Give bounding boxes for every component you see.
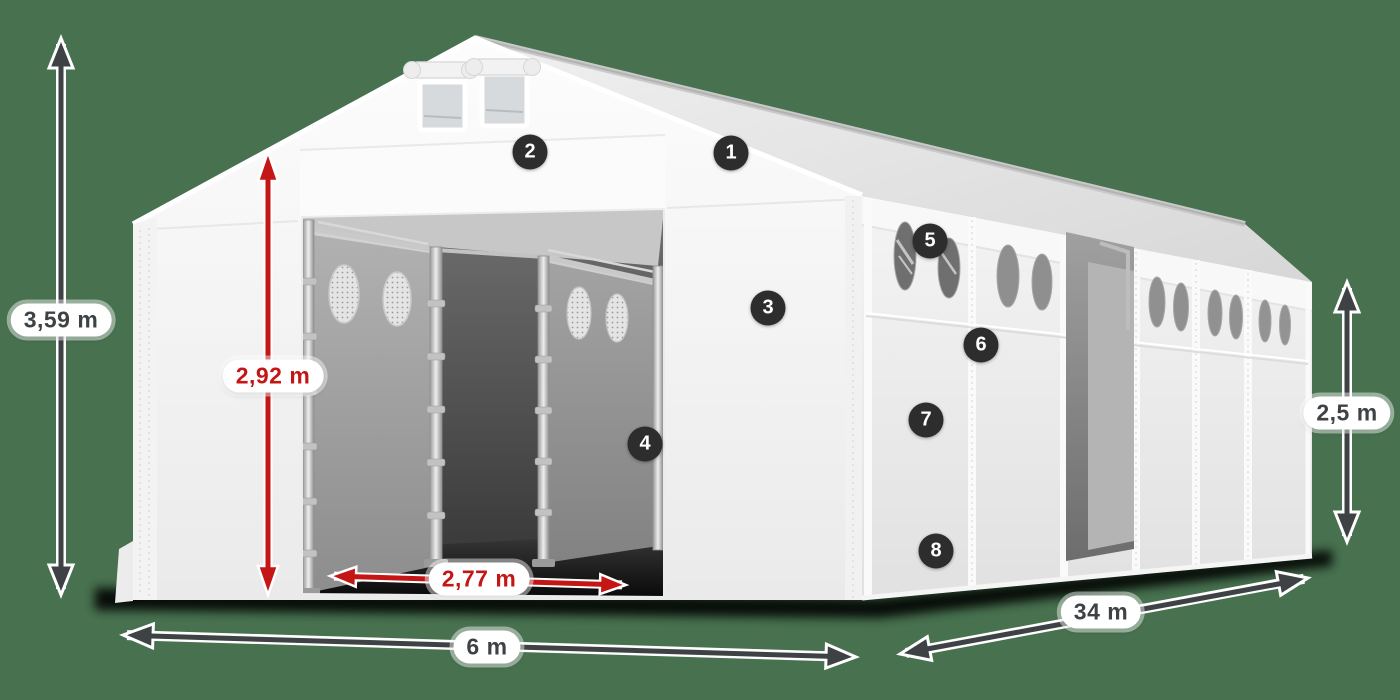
dimension-label-entrance-height: 2,92 m	[223, 360, 324, 393]
side-door-opening	[1066, 232, 1134, 561]
mesh-vent	[329, 265, 359, 323]
inner-gate-left-leaf	[313, 231, 430, 592]
corner-flap	[115, 541, 133, 603]
part-marker-2[interactable]: 2	[513, 135, 548, 170]
mesh-vent	[606, 294, 628, 342]
entrance	[297, 209, 664, 597]
dimension-label-side-length: 34 m	[1061, 596, 1141, 629]
gable-window	[482, 74, 527, 126]
entrance-header-beam	[300, 135, 665, 219]
part-marker-3[interactable]: 3	[751, 291, 786, 326]
dimension-label-entrance-width: 2,77 m	[429, 563, 530, 596]
mesh-vent	[383, 272, 411, 326]
dimension-label-total-height: 3,59 m	[11, 304, 112, 337]
dimension-label-front-width: 6 m	[453, 631, 520, 664]
part-marker-1[interactable]: 1	[714, 136, 749, 171]
mesh-vent	[567, 287, 591, 339]
part-marker-7[interactable]: 7	[909, 403, 944, 438]
part-marker-5[interactable]: 5	[913, 224, 948, 259]
tent-dimension-diagram: 3,59 m 2,92 m 2,77 m 6 m 34 m 2,5 m 1 2 …	[0, 0, 1400, 700]
dimension-label-wall-height: 2,5 m	[1303, 397, 1390, 430]
part-marker-8[interactable]: 8	[919, 534, 954, 569]
tent-illustration	[0, 0, 1400, 700]
gable-window	[420, 82, 465, 130]
rolled-window-covers	[404, 59, 541, 79]
inner-gate-right-leaf	[545, 258, 658, 563]
part-marker-6[interactable]: 6	[964, 328, 999, 363]
part-marker-4[interactable]: 4	[628, 427, 663, 462]
